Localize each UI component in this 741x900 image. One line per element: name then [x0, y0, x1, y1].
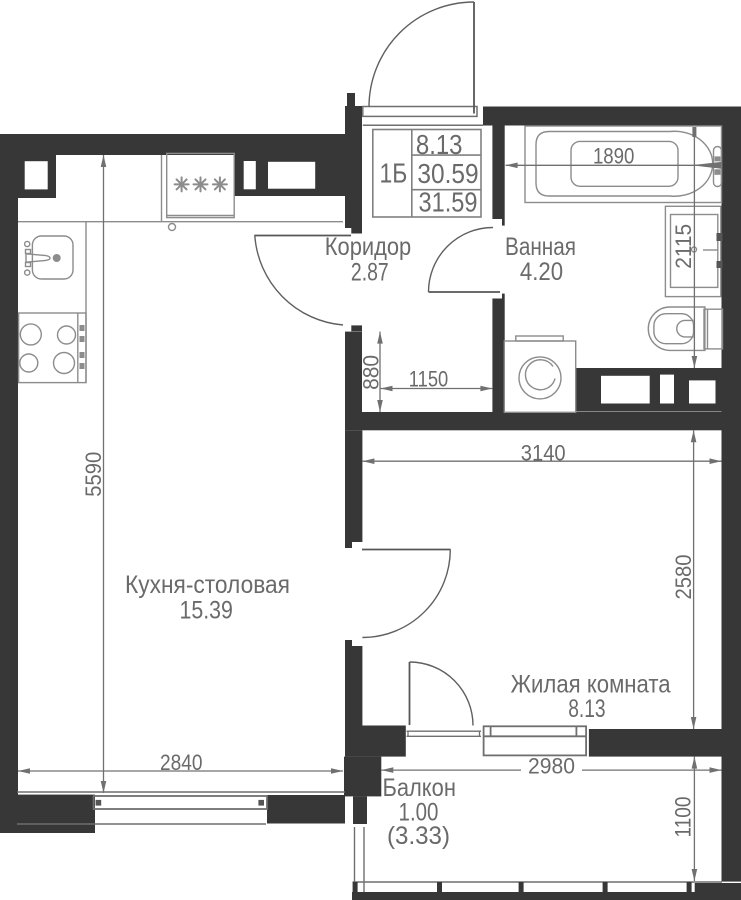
svg-text:3140: 3140 — [521, 441, 566, 466]
svg-text:1100: 1100 — [671, 797, 696, 838]
svg-text:30.59: 30.59 — [417, 158, 478, 189]
svg-text:1890: 1890 — [593, 143, 635, 168]
svg-text:880: 880 — [358, 355, 383, 390]
svg-text:Ванная: Ванная — [505, 233, 576, 261]
svg-text:8.13: 8.13 — [568, 695, 605, 723]
svg-text:Коридор: Коридор — [325, 233, 411, 261]
svg-text:4.20: 4.20 — [520, 258, 563, 286]
svg-text:15.39: 15.39 — [180, 597, 233, 625]
svg-text:2.87: 2.87 — [351, 259, 389, 287]
svg-text:2115: 2115 — [671, 224, 696, 269]
svg-text:31.59: 31.59 — [419, 186, 478, 217]
svg-text:8.13: 8.13 — [416, 129, 463, 160]
svg-text:2580: 2580 — [671, 555, 696, 600]
svg-text:(3.33): (3.33) — [387, 822, 450, 850]
svg-text:2840: 2840 — [160, 750, 203, 775]
svg-text:1Б: 1Б — [380, 157, 408, 188]
svg-text:1150: 1150 — [409, 367, 448, 392]
svg-text:2980: 2980 — [528, 754, 575, 779]
svg-text:5590: 5590 — [81, 452, 106, 497]
svg-text:Кухня-столовая: Кухня-столовая — [125, 571, 290, 599]
